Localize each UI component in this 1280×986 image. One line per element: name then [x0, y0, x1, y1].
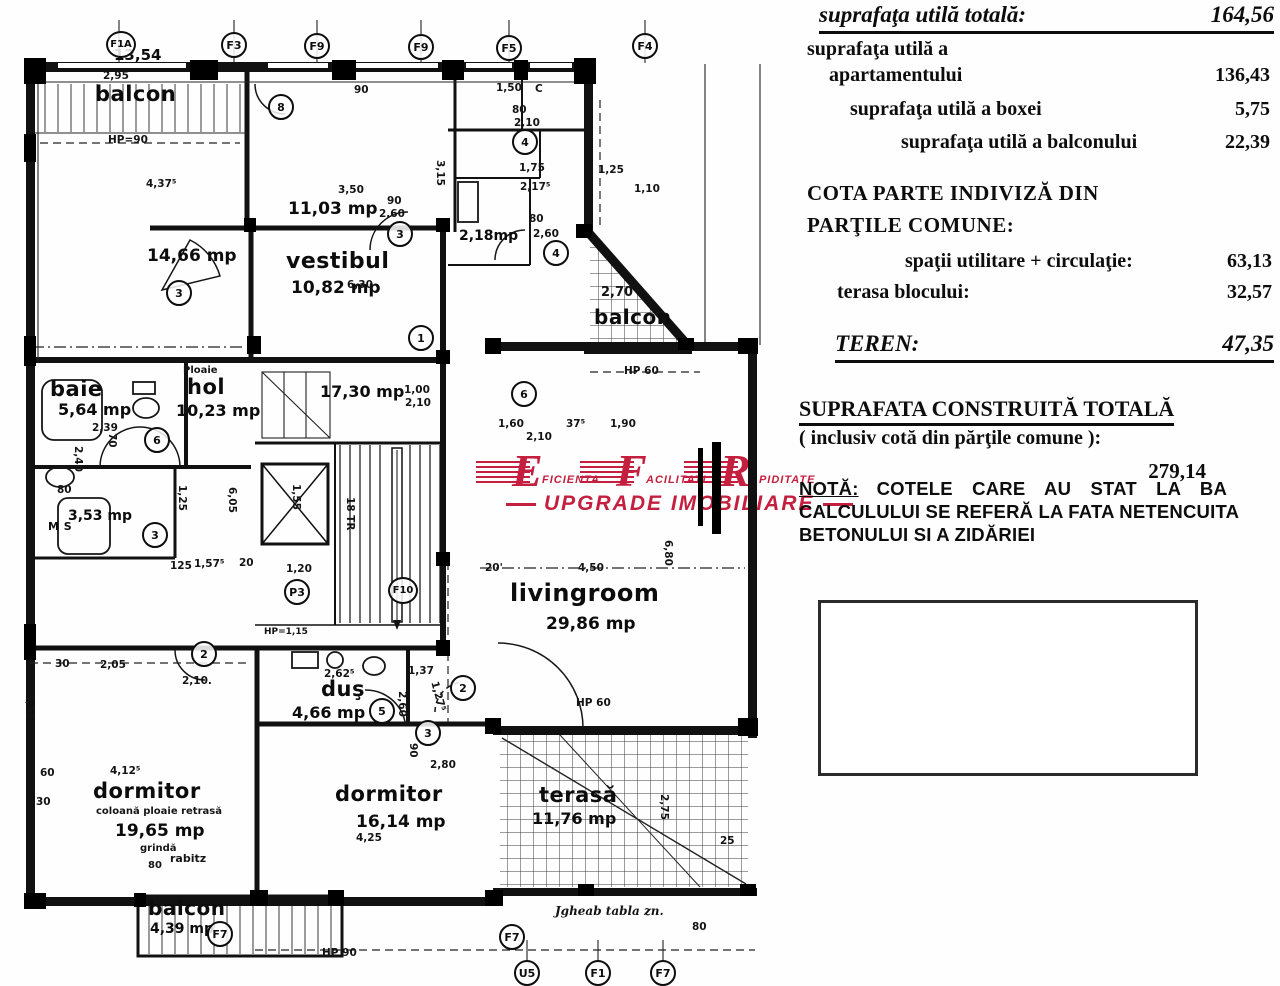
row-value: 136,43: [1215, 64, 1270, 87]
marker-circle: 3: [415, 720, 441, 746]
dimension-label: 2,80: [430, 759, 456, 771]
marker-circle: 6: [511, 381, 537, 407]
dimension-label: HP=1,15: [264, 627, 308, 637]
marker-circle: 3: [142, 522, 168, 548]
dimension-label: 80: [57, 484, 72, 496]
dimension-label: Ploaie: [183, 365, 218, 376]
marker-circle: P3: [284, 579, 310, 605]
dimension-label: 2,95: [103, 70, 129, 82]
dimension-label: 2,70: [601, 285, 633, 300]
dimension-label: HP 60: [576, 697, 611, 709]
room-note-label: 80: [148, 860, 162, 871]
room-note-label: coloană ploaie retrasă: [96, 806, 222, 817]
dimension-label: 2,10: [405, 397, 431, 409]
box-area-row: suprafaţa utilă a boxei 5,75: [850, 98, 1270, 121]
marker-circle: F7: [207, 921, 233, 947]
room-area-label: 11,03 mp: [288, 199, 378, 219]
marker-circle: F3: [221, 32, 247, 58]
total-usable-area-row: suprafaţa utilă totală: 164,56: [819, 2, 1274, 34]
dimension-label: 18 TR: [344, 497, 356, 531]
utility-circulation-row: spaţii utilitare + circulaţie: 63,13: [905, 250, 1272, 273]
dimension-label: 1,55: [290, 484, 302, 510]
dimension-label: 2,17⁵: [520, 181, 551, 193]
floor-plan: balcon13,5414,66 mp11,03 mpvestibul10,82…: [0, 0, 795, 983]
dimension-label: 1,27⁵: [428, 680, 447, 713]
room-area-label: 16,14 mp: [356, 812, 446, 832]
row-value: 63,13: [1227, 250, 1272, 273]
dimension-label: HP=90: [108, 134, 148, 146]
area-summary-panel: suprafaţa utilă totală: 164,56 suprafaţa…: [795, 0, 1280, 983]
room-area-label: 10,23 mp: [176, 401, 260, 420]
room-label: hol: [187, 375, 225, 399]
dimension-label: 1,25: [598, 164, 624, 176]
land-row: TEREN: 47,35: [835, 331, 1274, 363]
dimension-label: 2,10: [514, 117, 540, 129]
room-area-label: 11,76 mp: [532, 809, 616, 828]
dimension-label: 1,90: [610, 418, 636, 430]
dimension-label: 1,50: [496, 82, 522, 94]
note-line-2: CALCULULUI SE REFERĂ LA FATA NETENCUITA: [799, 501, 1239, 523]
dimension-label: 20': [485, 562, 503, 574]
dimension-label: 1,57⁵: [194, 558, 225, 570]
row-label: suprafaţa utilă totală:: [819, 2, 1026, 27]
room-label: duş: [321, 677, 365, 701]
built-area-title: SUPRAFATA CONSTRUITĂ TOTALĂ: [799, 396, 1174, 426]
row-value: 164,56: [1211, 2, 1274, 28]
common-parts-title-1: COTA PARTE INDIVIZĂ DIN: [807, 181, 1099, 206]
dimension-label: 2,75: [658, 794, 670, 820]
dimension-label: 4,55: [24, 694, 36, 720]
dimension-label: 6,30: [347, 279, 373, 291]
dimension-label: 2,62⁵: [324, 668, 355, 680]
dimension-label: 2,40: [72, 446, 84, 472]
marker-circle: F9: [304, 33, 330, 59]
row-value: 5,75: [1235, 98, 1270, 121]
room-label: terasă: [539, 783, 617, 807]
marker-circle: 3: [387, 221, 413, 247]
dimension-label: 1,20: [286, 563, 312, 575]
dimension-label: 80: [692, 921, 707, 933]
dimension-label: 1,37: [408, 665, 434, 677]
room-label: balcon: [148, 896, 226, 920]
note-label: NOTĂ:: [799, 478, 859, 499]
common-parts-title-2: PARŢILE COMUNE:: [807, 213, 1014, 238]
room-note-label: rabitz: [170, 852, 206, 865]
marker-circle: F1A: [106, 31, 136, 58]
marker-circle: 2: [191, 641, 217, 667]
dimension-label: 1,75: [519, 162, 545, 174]
dimension-label: 4,50: [578, 562, 604, 574]
room-label: balcon: [95, 82, 176, 106]
dimension-label: 70: [106, 433, 118, 448]
dimension-label: 1,60: [498, 418, 524, 430]
room-area-label: 19,65 mp: [115, 821, 205, 841]
row-value: 47,35: [1222, 331, 1274, 357]
dimension-label: 4,37⁵: [146, 178, 177, 190]
dimension-label: 6,80: [662, 540, 674, 566]
room-label: baie: [50, 377, 103, 401]
dimension-label: 2,60: [533, 228, 559, 240]
room-area-label: 4,66 mp: [292, 703, 365, 722]
room-area-label: 17,30 mp: [320, 382, 404, 401]
dimension-label: 4,12⁵: [110, 765, 141, 777]
dimension-label: 37⁵: [566, 418, 585, 430]
dimension-label: 20: [239, 557, 254, 569]
apartment-area-label-1: suprafaţa utilă a: [807, 38, 948, 61]
blank-stamp-box: [818, 600, 1198, 776]
row-value: 22,39: [1225, 131, 1270, 154]
dimension-label: Jgheab tabla zn.: [555, 904, 664, 918]
marker-circle: 2: [450, 675, 476, 701]
dimension-label: 2,05: [100, 659, 126, 671]
dimension-label: 80: [512, 104, 527, 116]
note-line-3: BETONULUI SI A ZIDĂRIEI: [799, 524, 1035, 546]
marker-circle: F5: [496, 35, 522, 61]
dimension-label: 60: [40, 767, 55, 779]
dimension-label: 125: [170, 560, 192, 572]
marker-circle: 4: [512, 129, 538, 155]
room-area-label: 14,66 mp: [147, 246, 237, 266]
room-area-label: 2,18mp: [459, 228, 518, 244]
room-label: dormitor: [335, 782, 443, 806]
dimension-label: 30: [36, 796, 51, 808]
room-label: dormitor: [93, 779, 201, 803]
marker-circle: 6: [144, 427, 170, 453]
dimension-label: 90: [387, 195, 402, 207]
dimension-label: 3,50: [338, 184, 364, 196]
dimension-label: 1,25: [176, 485, 188, 511]
dimension-label: 25: [720, 835, 735, 847]
dimension-label: C: [535, 83, 543, 95]
marker-circle: 5: [369, 698, 395, 724]
marker-circle: F7: [499, 924, 525, 950]
room-area-label: 4,39 mp: [150, 921, 214, 937]
marker-circle: 4: [543, 240, 569, 266]
block-terrace-row: terasa blocului: 32,57: [837, 281, 1272, 304]
dimension-label: 2,10.: [182, 675, 212, 687]
scanned-floor-plan-page: balcon13,5414,66 mp11,03 mpvestibul10,82…: [0, 0, 1280, 983]
room-area-label: 5,64 mp: [58, 400, 131, 419]
dimension-label: 3,15: [434, 160, 446, 186]
room-label: livingroom: [510, 579, 659, 607]
dimension-label: 90: [407, 743, 419, 758]
dimension-label: 2,10: [526, 431, 552, 443]
dimension-label: HP 60: [624, 365, 659, 377]
marker-circle: U5: [514, 960, 540, 986]
dimension-label: 6,05: [226, 487, 238, 513]
dimension-label: 2,60: [396, 691, 408, 717]
dimension-label: 30: [55, 658, 70, 670]
dimension-label: 2,60: [379, 208, 405, 220]
room-area-label: 3,53 mp: [68, 508, 132, 524]
marker-circle: F7: [650, 960, 676, 986]
dimension-label: 80: [529, 213, 544, 225]
marker-circle: F10: [388, 577, 418, 604]
row-value: 32,57: [1227, 281, 1272, 304]
note-line-1: NOTĂ:COTELE CARE AU STAT LA BA: [799, 478, 1227, 500]
room-label: balcon: [594, 305, 672, 329]
dimension-label: 1,00: [404, 384, 430, 396]
dimension-label: 1,10: [634, 183, 660, 195]
marker-circle: F9: [408, 34, 434, 60]
dimension-label: 4,25: [356, 832, 382, 844]
marker-circle: 8: [268, 94, 294, 120]
balcony-area-row: suprafaţa utilă a balconului 22,39: [901, 131, 1270, 154]
room-label: vestibul: [286, 249, 389, 274]
marker-circle: F4: [632, 33, 658, 59]
dimension-label: 90: [354, 84, 369, 96]
marker-circle: F1: [585, 960, 611, 986]
built-area-subtitle: ( inclusiv cotă din părţile comune ):: [799, 427, 1101, 450]
plan-labels-layer: balcon13,5414,66 mp11,03 mpvestibul10,82…: [0, 0, 795, 983]
marker-circle: 1: [408, 325, 434, 351]
apartment-area-row: apartamentului 136,43: [829, 64, 1270, 87]
marker-circle: 3: [166, 280, 192, 306]
dimension-label: HP 90: [322, 947, 357, 959]
room-area-label: 29,86 mp: [546, 614, 636, 634]
